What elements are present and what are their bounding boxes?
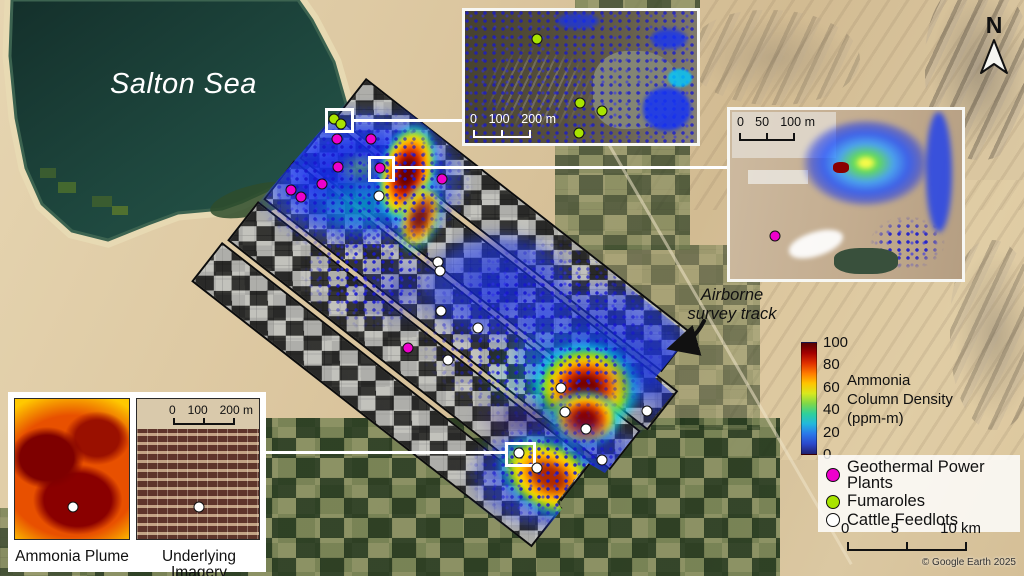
north-label: N [975, 14, 1013, 37]
callout-box-feedlot [505, 442, 536, 467]
geothermal-marker-icon [826, 468, 840, 482]
main-scalebar-labels: 0510 km [841, 521, 981, 536]
caption-ammonia-plume: Ammonia Plume [8, 549, 136, 565]
legend-item-fumaroles: Fumaroles [826, 493, 1020, 510]
colorbar-ticks: 1008060 40200 [823, 335, 848, 462]
fumarole-marker [597, 106, 608, 117]
callout-line-feedlot [263, 451, 505, 454]
fumarole-marker-icon [826, 495, 840, 509]
colorbar [801, 342, 817, 455]
inset-fumaroles: 0100200 m [462, 8, 700, 146]
north-arrow: N [975, 14, 1013, 80]
mountains-north [690, 10, 860, 105]
fumarole-marker [532, 34, 543, 45]
attribution: © Google Earth 2025 [922, 557, 1016, 568]
callout-line-fumarole [352, 119, 464, 122]
colorbar-title: Ammonia Column Density (ppm-m) [847, 371, 953, 429]
cattle-feedlot-marker [194, 502, 205, 513]
north-needle-icon [978, 37, 1010, 75]
main-scalebar [847, 542, 967, 551]
feedlot-marker-icon [826, 513, 840, 527]
inset-geothermal: 050100 m [727, 107, 965, 282]
survey-track-arrow [664, 318, 720, 360]
fields-northeast [555, 135, 690, 250]
callout-box-fumarole [325, 108, 354, 133]
inset-feedlot-panel: 0100200 m Ammonia Plume Underlying Image… [8, 392, 266, 572]
salton-sea-label: Salton Sea [110, 68, 280, 101]
callout-box-geothermal [368, 156, 395, 182]
caption-underlying-imagery: Underlying Imagery [134, 549, 264, 576]
cattle-feedlot-marker [68, 502, 79, 513]
geothermal-plant-marker [770, 231, 781, 242]
inset-ammonia-plume-image [14, 398, 130, 540]
legend-item-geothermal: Geothermal Power Plants [826, 459, 1020, 492]
fumarole-marker [575, 98, 586, 109]
figure: 0100200 m 050100 m 0100200 m [0, 0, 1024, 576]
callout-line-geothermal [392, 166, 730, 169]
fumarole-marker [574, 128, 585, 139]
inset-underlying-imagery: 0100200 m [136, 398, 260, 540]
